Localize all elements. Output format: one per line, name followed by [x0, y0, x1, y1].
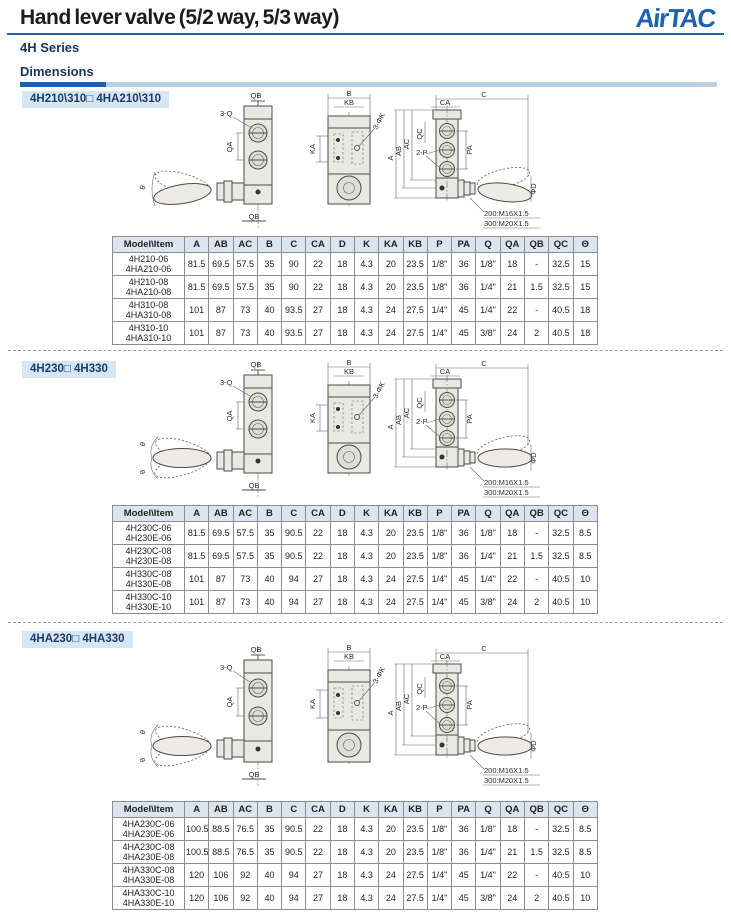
label-qa: QA — [225, 142, 234, 153]
column-header: PA — [452, 802, 476, 818]
table-row: 4H310-084HA310-0810187734093.527184.3242… — [113, 299, 598, 322]
value-cell: 1/4" — [476, 299, 500, 322]
table-body: 4H230C-064H230E-0681.569.557.53590.52218… — [113, 522, 598, 614]
value-cell: 1/4" — [476, 568, 500, 591]
table-body: 4H210-064HA210-0681.569.557.5359022184.3… — [113, 253, 598, 345]
column-header: AC — [233, 506, 257, 522]
column-header: CA — [306, 237, 330, 253]
value-cell: 18 — [573, 299, 598, 322]
label-theta-lower: θ — [138, 468, 148, 475]
label-ac: AC — [402, 138, 411, 149]
value-cell: 69.5 — [209, 545, 233, 568]
column-header: AB — [209, 802, 233, 818]
value-cell: 18 — [330, 864, 354, 887]
column-header: Q — [476, 506, 500, 522]
value-cell: 21 — [500, 841, 524, 864]
value-cell: 40 — [257, 299, 281, 322]
table-body: 4HA230C-064HA230E-06100.588.576.53590.52… — [113, 818, 598, 910]
value-cell: 87 — [209, 568, 233, 591]
value-cell: 27 — [306, 322, 330, 345]
value-cell: 1/8" — [427, 522, 451, 545]
label-ca: CA — [440, 367, 450, 376]
value-cell: 4.3 — [354, 568, 378, 591]
value-cell: 8.5 — [573, 841, 598, 864]
value-cell: 22 — [500, 864, 524, 887]
value-cell: 81.5 — [185, 276, 209, 299]
value-cell: - — [524, 568, 548, 591]
column-header: A — [185, 237, 209, 253]
model-cell: 4H330C-084H330E-08 — [113, 568, 185, 591]
value-cell: 2 — [524, 322, 548, 345]
value-cell: 93.5 — [282, 299, 306, 322]
value-cell: 120 — [185, 864, 209, 887]
value-cell: 100.5 — [185, 818, 209, 841]
column-header: QB — [524, 506, 548, 522]
value-cell: 24 — [500, 322, 524, 345]
value-cell: 22 — [306, 841, 330, 864]
table-row: 4H310-104HA310-1010187734093.527184.3242… — [113, 322, 598, 345]
value-cell: 87 — [209, 591, 233, 614]
value-cell: 45 — [452, 864, 476, 887]
column-header-model: Model\Item — [113, 802, 185, 818]
section-divider-1 — [8, 350, 723, 351]
label-ac: AC — [402, 693, 411, 704]
value-cell: 10 — [573, 568, 598, 591]
value-cell: 94 — [282, 887, 306, 910]
value-cell: 36 — [452, 841, 476, 864]
value-cell: 18 — [330, 568, 354, 591]
value-cell: 32.5 — [549, 841, 573, 864]
value-cell: 69.5 — [209, 522, 233, 545]
value-cell: 4.3 — [354, 591, 378, 614]
value-cell: 4.3 — [354, 276, 378, 299]
dimensioned-side-view: C CA A AB AC QC 2-P PA — [386, 359, 540, 497]
value-cell: 1.5 — [524, 276, 548, 299]
value-cell: 22 — [500, 299, 524, 322]
column-header: KB — [403, 237, 427, 253]
value-cell: 45 — [452, 568, 476, 591]
catalog-page: Hand lever valve (5/2 way, 5/3 way) AirT… — [0, 0, 731, 915]
value-cell: 27 — [306, 591, 330, 614]
column-header: P — [427, 506, 451, 522]
value-cell: 22 — [306, 253, 330, 276]
value-cell: 22 — [306, 276, 330, 299]
label-kb: KB — [344, 652, 354, 661]
column-header: QB — [524, 802, 548, 818]
value-cell: 18 — [330, 887, 354, 910]
label-ka: KA — [308, 699, 317, 709]
label-qb-bottom: QB — [249, 481, 260, 490]
value-cell: 22 — [500, 568, 524, 591]
value-cell: 32.5 — [549, 276, 573, 299]
side-view-lever: QB 3-Q QA θ θ QB — [138, 645, 272, 786]
value-cell: 81.5 — [185, 545, 209, 568]
value-cell: 18 — [500, 522, 524, 545]
label-pa: PA — [465, 145, 474, 154]
value-cell: 36 — [452, 818, 476, 841]
value-cell: 1/4" — [427, 299, 451, 322]
section-label-3: 4HA230□ 4HA330 — [22, 631, 133, 648]
value-cell: 18 — [330, 253, 354, 276]
value-cell: 4.3 — [354, 253, 378, 276]
label-c: C — [481, 90, 487, 99]
label-ac: AC — [402, 407, 411, 418]
value-cell: 23.5 — [403, 818, 427, 841]
label-ka: KA — [308, 413, 317, 423]
value-cell: 24 — [500, 591, 524, 614]
value-cell: 24 — [379, 887, 403, 910]
column-header: QA — [500, 802, 524, 818]
column-header: QC — [549, 506, 573, 522]
label-three-q: 3-Q — [220, 378, 233, 387]
label-thread-200: 200:M16X1.5 — [484, 478, 529, 487]
value-cell: 10 — [573, 887, 598, 910]
value-cell: 27 — [306, 299, 330, 322]
table-head: Model\ItemAABACBCCADKKAKBPPAQQAQBQCΘ — [113, 506, 598, 522]
technical-drawing-2: QB 3-Q QA θ θ QB B KB — [128, 357, 620, 505]
value-cell: 40 — [257, 887, 281, 910]
value-cell: 18 — [573, 322, 598, 345]
column-header: Θ — [573, 237, 598, 253]
value-cell: - — [524, 253, 548, 276]
label-qb-bottom: QB — [249, 212, 260, 221]
value-cell: 23.5 — [403, 522, 427, 545]
value-cell: 27.5 — [403, 322, 427, 345]
column-header: A — [185, 506, 209, 522]
model-cell: 4H230C-064H230E-06 — [113, 522, 185, 545]
label-theta: θ — [138, 185, 148, 191]
model-cell: 4H230C-084H230E-08 — [113, 545, 185, 568]
value-cell: 90.5 — [282, 522, 306, 545]
label-phid: ΦD — [529, 183, 538, 195]
label-phid: ΦD — [529, 452, 538, 464]
value-cell: - — [524, 299, 548, 322]
value-cell: 57.5 — [233, 276, 257, 299]
value-cell: 40.5 — [549, 864, 573, 887]
section-divider-2 — [8, 622, 723, 623]
value-cell: 40.5 — [549, 568, 573, 591]
value-cell: 94 — [282, 591, 306, 614]
value-cell: 4.3 — [354, 818, 378, 841]
value-cell: 1/4" — [427, 568, 451, 591]
value-cell: 32.5 — [549, 522, 573, 545]
value-cell: 18 — [330, 841, 354, 864]
column-header: C — [282, 802, 306, 818]
value-cell: 1/8" — [427, 545, 451, 568]
value-cell: 45 — [452, 299, 476, 322]
column-header: K — [354, 506, 378, 522]
value-cell: 27 — [306, 887, 330, 910]
value-cell: 81.5 — [185, 522, 209, 545]
value-cell: - — [524, 864, 548, 887]
value-cell: 45 — [452, 887, 476, 910]
column-header: D — [330, 237, 354, 253]
column-header: D — [330, 802, 354, 818]
value-cell: 40.5 — [549, 591, 573, 614]
model-cell: 4HA230C-064HA230E-06 — [113, 818, 185, 841]
value-cell: 1/4" — [427, 591, 451, 614]
value-cell: 18 — [330, 276, 354, 299]
dimensions-heading: Dimensions — [20, 64, 94, 79]
value-cell: 57.5 — [233, 253, 257, 276]
column-header: A — [185, 802, 209, 818]
value-cell: 87 — [209, 322, 233, 345]
value-cell: 18 — [330, 818, 354, 841]
value-cell: 35 — [257, 253, 281, 276]
value-cell: 8.5 — [573, 818, 598, 841]
value-cell: 35 — [257, 522, 281, 545]
value-cell: - — [524, 818, 548, 841]
label-qa: QA — [225, 697, 234, 708]
value-cell: 20 — [379, 545, 403, 568]
label-qc: QC — [415, 683, 424, 695]
label-qb-top: QB — [251, 645, 262, 654]
value-cell: 40 — [257, 322, 281, 345]
value-cell: 69.5 — [209, 276, 233, 299]
page-title: Hand lever valve (5/2 way, 5/3 way) — [20, 6, 339, 30]
value-cell: 90 — [282, 253, 306, 276]
value-cell: 27 — [306, 568, 330, 591]
column-header: KB — [403, 506, 427, 522]
value-cell: 27 — [306, 864, 330, 887]
value-cell: 1.5 — [524, 545, 548, 568]
column-header: B — [257, 506, 281, 522]
label-three-phik: 3-ΦK — [371, 665, 387, 685]
value-cell: 36 — [452, 545, 476, 568]
value-cell: 27.5 — [403, 591, 427, 614]
value-cell: 24 — [379, 591, 403, 614]
value-cell: 10 — [573, 864, 598, 887]
label-c: C — [481, 644, 487, 653]
column-header: B — [257, 237, 281, 253]
value-cell: 93.5 — [282, 322, 306, 345]
value-cell: 2 — [524, 591, 548, 614]
label-qb-top: QB — [251, 360, 262, 369]
value-cell: 20 — [379, 522, 403, 545]
value-cell: 22 — [306, 818, 330, 841]
value-cell: 24 — [379, 322, 403, 345]
label-pa: PA — [465, 414, 474, 423]
front-view: B KB KA 3-ΦK — [308, 358, 387, 477]
dimensions-table-2: Model\ItemAABACBCCADKKAKBPPAQQAQBQCΘ 4H2… — [112, 505, 598, 614]
column-header-model: Model\Item — [113, 506, 185, 522]
model-cell: 4HA330C-104HA330E-10 — [113, 887, 185, 910]
column-header: KA — [379, 237, 403, 253]
table-row: 4H230C-064H230E-0681.569.557.53590.52218… — [113, 522, 598, 545]
value-cell: 23.5 — [403, 276, 427, 299]
table-row: 4HA330C-104HA330E-1012010692409427184.32… — [113, 887, 598, 910]
value-cell: 18 — [330, 322, 354, 345]
column-header: QB — [524, 237, 548, 253]
value-cell: 24 — [379, 568, 403, 591]
column-header: P — [427, 237, 451, 253]
value-cell: 73 — [233, 568, 257, 591]
value-cell: 20 — [379, 818, 403, 841]
series-title: 4H Series — [20, 40, 79, 55]
front-view: B KB KA 3-ΦK — [308, 89, 387, 208]
model-cell: 4H210-064HA210-06 — [113, 253, 185, 276]
value-cell: 23.5 — [403, 841, 427, 864]
value-cell: 24 — [500, 887, 524, 910]
value-cell: 101 — [185, 591, 209, 614]
column-header: AC — [233, 802, 257, 818]
value-cell: 23.5 — [403, 253, 427, 276]
column-header: K — [354, 237, 378, 253]
technical-drawing-1: QB 3-Q QA θ QB B KB — [128, 88, 620, 236]
value-cell: 15 — [573, 276, 598, 299]
value-cell: 32.5 — [549, 818, 573, 841]
value-cell: 88.5 — [209, 841, 233, 864]
value-cell: 100.5 — [185, 841, 209, 864]
value-cell: 18 — [330, 591, 354, 614]
column-header: KA — [379, 802, 403, 818]
label-thread-300: 300:M20X1.5 — [484, 488, 529, 497]
label-pa: PA — [465, 700, 474, 709]
value-cell: 45 — [452, 591, 476, 614]
column-header: B — [257, 802, 281, 818]
label-qa: QA — [225, 411, 234, 422]
column-header: Q — [476, 802, 500, 818]
table-row: 4HA230C-064HA230E-06100.588.576.53590.52… — [113, 818, 598, 841]
value-cell: 76.5 — [233, 818, 257, 841]
value-cell: 35 — [257, 545, 281, 568]
label-ca: CA — [440, 652, 450, 661]
value-cell: 101 — [185, 322, 209, 345]
value-cell: 8.5 — [573, 522, 598, 545]
value-cell: 18 — [500, 818, 524, 841]
label-two-p: 2-P — [416, 148, 428, 157]
model-cell: 4H210-084HA210-08 — [113, 276, 185, 299]
label-qb-top: QB — [251, 91, 262, 100]
value-cell: 1/8" — [427, 276, 451, 299]
column-header: Θ — [573, 506, 598, 522]
label-thread-200: 200:M16X1.5 — [484, 209, 529, 218]
dimensioned-side-view: C CA A AB AC QC 2-P PA — [386, 644, 540, 785]
column-header: AB — [209, 237, 233, 253]
label-b: B — [346, 358, 351, 367]
value-cell: 36 — [452, 522, 476, 545]
value-cell: 1/4" — [427, 322, 451, 345]
value-cell: 22 — [306, 522, 330, 545]
label-two-p: 2-P — [416, 417, 428, 426]
table-row: 4H330C-104H330E-101018773409427184.32427… — [113, 591, 598, 614]
column-header: Q — [476, 237, 500, 253]
value-cell: 1/4" — [476, 276, 500, 299]
label-qc: QC — [415, 397, 424, 409]
value-cell: 18 — [500, 253, 524, 276]
value-cell: 69.5 — [209, 253, 233, 276]
model-cell: 4HA330C-084HA330E-08 — [113, 864, 185, 887]
value-cell: 4.3 — [354, 841, 378, 864]
dimensioned-side-view: C CA A AB AC QC 2-P PA — [386, 90, 540, 228]
value-cell: 90.5 — [282, 545, 306, 568]
label-kb: KB — [344, 367, 354, 376]
value-cell: 3/8" — [476, 322, 500, 345]
value-cell: 24 — [379, 299, 403, 322]
value-cell: 87 — [209, 299, 233, 322]
header-rule — [7, 33, 724, 35]
value-cell: 120 — [185, 887, 209, 910]
label-three-phik: 3-ΦK — [371, 111, 387, 131]
value-cell: 8.5 — [573, 545, 598, 568]
value-cell: 18 — [330, 522, 354, 545]
value-cell: 36 — [452, 276, 476, 299]
label-qb-bottom: QB — [249, 770, 260, 779]
column-header: QA — [500, 237, 524, 253]
value-cell: 1/4" — [476, 864, 500, 887]
value-cell: 18 — [330, 545, 354, 568]
label-theta-upper: θ — [138, 729, 148, 736]
value-cell: 20 — [379, 253, 403, 276]
value-cell: 15 — [573, 253, 598, 276]
value-cell: 1/4" — [427, 887, 451, 910]
column-header: CA — [306, 506, 330, 522]
label-thread-200: 200:M16X1.5 — [484, 766, 529, 775]
value-cell: 45 — [452, 322, 476, 345]
value-cell: 1/8" — [427, 841, 451, 864]
label-c: C — [481, 359, 487, 368]
value-cell: 27.5 — [403, 299, 427, 322]
value-cell: 20 — [379, 841, 403, 864]
column-header: Θ — [573, 802, 598, 818]
value-cell: 32.5 — [549, 545, 573, 568]
column-header: AC — [233, 237, 257, 253]
value-cell: 76.5 — [233, 841, 257, 864]
value-cell: 88.5 — [209, 818, 233, 841]
column-header: AB — [209, 506, 233, 522]
value-cell: 106 — [209, 887, 233, 910]
column-header: PA — [452, 506, 476, 522]
value-cell: 57.5 — [233, 522, 257, 545]
value-cell: 36 — [452, 253, 476, 276]
value-cell: 27.5 — [403, 887, 427, 910]
value-cell: 10 — [573, 591, 598, 614]
dimensions-underline-bar — [20, 82, 717, 87]
value-cell: - — [524, 522, 548, 545]
table-row: 4HA230C-084HA230E-08100.588.576.53590.52… — [113, 841, 598, 864]
value-cell: 1/8" — [476, 253, 500, 276]
value-cell: 2 — [524, 887, 548, 910]
label-b: B — [346, 643, 351, 652]
value-cell: 1/8" — [427, 818, 451, 841]
column-header: QC — [549, 237, 573, 253]
value-cell: 1.5 — [524, 841, 548, 864]
front-view: B KB KA 3-ΦK — [308, 643, 387, 766]
value-cell: 35 — [257, 818, 281, 841]
value-cell: 27.5 — [403, 568, 427, 591]
technical-drawing-3: QB 3-Q QA θ θ QB B KB — [128, 642, 620, 794]
value-cell: 40 — [257, 591, 281, 614]
value-cell: 3/8" — [476, 887, 500, 910]
value-cell: 73 — [233, 591, 257, 614]
label-thread-300: 300:M20X1.5 — [484, 219, 529, 228]
value-cell: 22 — [306, 545, 330, 568]
column-header: D — [330, 506, 354, 522]
value-cell: 40.5 — [549, 887, 573, 910]
value-cell: 21 — [500, 276, 524, 299]
label-two-p: 2-P — [416, 703, 428, 712]
value-cell: 90.5 — [282, 818, 306, 841]
table-row: 4H230C-084H230E-0881.569.557.53590.52218… — [113, 545, 598, 568]
value-cell: 40 — [257, 568, 281, 591]
side-view-lever: QB 3-Q QA θ θ QB — [138, 360, 272, 497]
value-cell: 4.3 — [354, 864, 378, 887]
label-three-phik: 3-ΦK — [371, 380, 387, 400]
column-header: P — [427, 802, 451, 818]
value-cell: 20 — [379, 276, 403, 299]
value-cell: 1/4" — [427, 864, 451, 887]
value-cell: 1/8" — [476, 522, 500, 545]
